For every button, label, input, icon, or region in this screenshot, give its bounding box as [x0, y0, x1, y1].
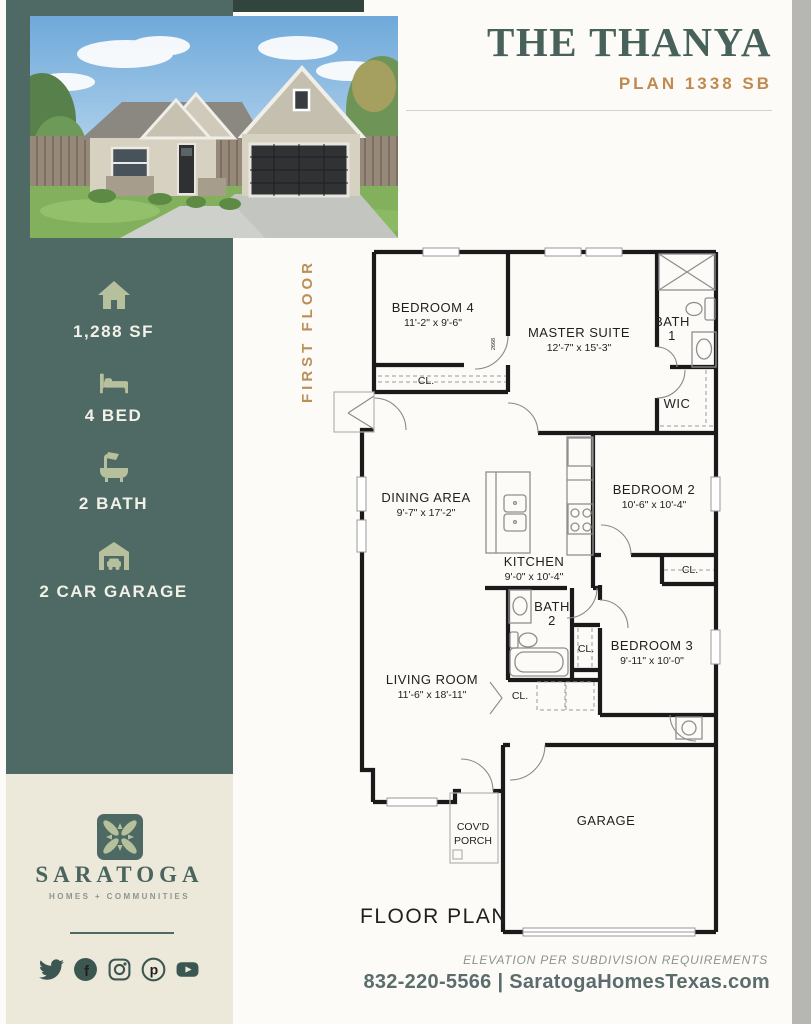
brand-divider: [70, 932, 174, 934]
bath1-label: BATH: [654, 314, 690, 329]
instagram-icon: [107, 957, 132, 982]
bath1-number: 1: [668, 328, 676, 343]
master-dims: 12'-7" x 15'-3": [547, 342, 612, 354]
master-label: MASTER SUITE: [528, 325, 630, 340]
bath2-label: BATH: [534, 599, 570, 614]
kitchen-label: KITCHEN: [504, 554, 565, 569]
twitter-icon: [39, 957, 64, 982]
elevation-note: ELEVATION PER SUBDIVISION REQUIREMENTS: [463, 953, 768, 967]
contact-line: 832-220-5566 | SaratogaHomesTexas.com: [363, 971, 770, 994]
porch-label-line1: COV'D: [457, 821, 490, 833]
bedroom2-dims: 10'-6" x 10'-4": [622, 499, 687, 511]
stat-garage: 2 CAR GARAGE: [0, 538, 227, 602]
bath2-number: 2: [548, 613, 556, 628]
pinterest-icon: p: [141, 957, 166, 982]
plan-number: PLAN 1338 SB: [400, 74, 772, 94]
bedroom2-label: BEDROOM 2: [613, 482, 696, 497]
bed-icon: [95, 368, 133, 396]
facebook-icon: f: [73, 957, 98, 982]
youtube-icon: [175, 957, 200, 982]
stat-label-bed: 4 BED: [0, 406, 227, 426]
brand-name: SARATOGA: [6, 862, 233, 888]
stat-label-garage: 2 CAR GARAGE: [0, 582, 227, 602]
stat-bedrooms: 4 BED: [0, 368, 227, 426]
stat-label-sf: 1,288 SF: [0, 322, 227, 342]
stat-label-bath: 2 BATH: [0, 494, 227, 514]
plan-title: THE THANYA: [400, 20, 772, 65]
floor-plan-walls: [362, 252, 716, 932]
brand-tagline: HOMES + COMMUNITIES: [6, 892, 233, 901]
stat-square-feet: 1,288 SF: [0, 278, 227, 342]
living-label: LIVING ROOM: [386, 672, 478, 687]
floor-plan-caption: FLOOR PLAN: [360, 905, 508, 928]
living-dims: 11'-6" x 18'-11": [398, 689, 467, 701]
bedroom4-label: BEDROOM 4: [392, 300, 475, 315]
brand-panel: SARATOGA HOMES + COMMUNITIES f p: [6, 774, 233, 1024]
bath-icon: [96, 448, 132, 484]
window-markers: [357, 248, 720, 936]
closet-label-bed2: CL.: [682, 564, 698, 576]
title-block: THE THANYA PLAN 1338 SB: [400, 20, 772, 94]
stat-bathrooms: 2 BATH: [0, 448, 227, 514]
closet-label-hall: CL.: [512, 690, 528, 702]
svg-text:f: f: [84, 964, 89, 980]
bedroom3-label: BEDROOM 3: [611, 638, 694, 653]
flyer-page: { "header": { "title": "THE THANYA", "pl…: [0, 0, 811, 1024]
bedroom4-dims: 11'-2" x 9'-6": [404, 317, 462, 329]
closet-label-bed3: CL.: [578, 643, 594, 655]
pinwheel-leaf-logo-icon: [96, 813, 144, 861]
first-floor-label: FIRST FLOOR: [299, 259, 316, 403]
house-rendering-illustration: [30, 16, 398, 238]
title-divider: [406, 110, 772, 111]
bedroom3-dims: 9'-11" x 10'-0": [620, 655, 684, 667]
saratoga-logo: [6, 813, 233, 866]
dining-label: DINING AREA: [381, 490, 470, 505]
floor-plan-drawing: BEDROOM 4 11'-2" x 9'-6" MASTER SUITE 12…: [330, 240, 730, 960]
closet-label-bed4: CL.: [418, 375, 434, 387]
wic-label: WIC: [664, 396, 691, 411]
porch-label-line2: PORCH: [454, 835, 492, 847]
kitchen-dims: 9'-0" x 10'-4": [505, 571, 564, 583]
house-photo: [30, 16, 398, 238]
dining-dims: 9'-7" x 17'-2": [397, 507, 456, 519]
garage-icon: [96, 538, 132, 572]
garage-label: GARAGE: [577, 813, 636, 828]
social-icon-row: f p: [6, 957, 233, 982]
door-size-tag: 2668: [491, 338, 497, 350]
home-icon: [96, 278, 132, 312]
svg-text:p: p: [150, 961, 159, 977]
scan-artifact-right-strip: [792, 0, 811, 1024]
room-labels: BEDROOM 4 11'-2" x 9'-6" MASTER SUITE 12…: [360, 300, 698, 928]
